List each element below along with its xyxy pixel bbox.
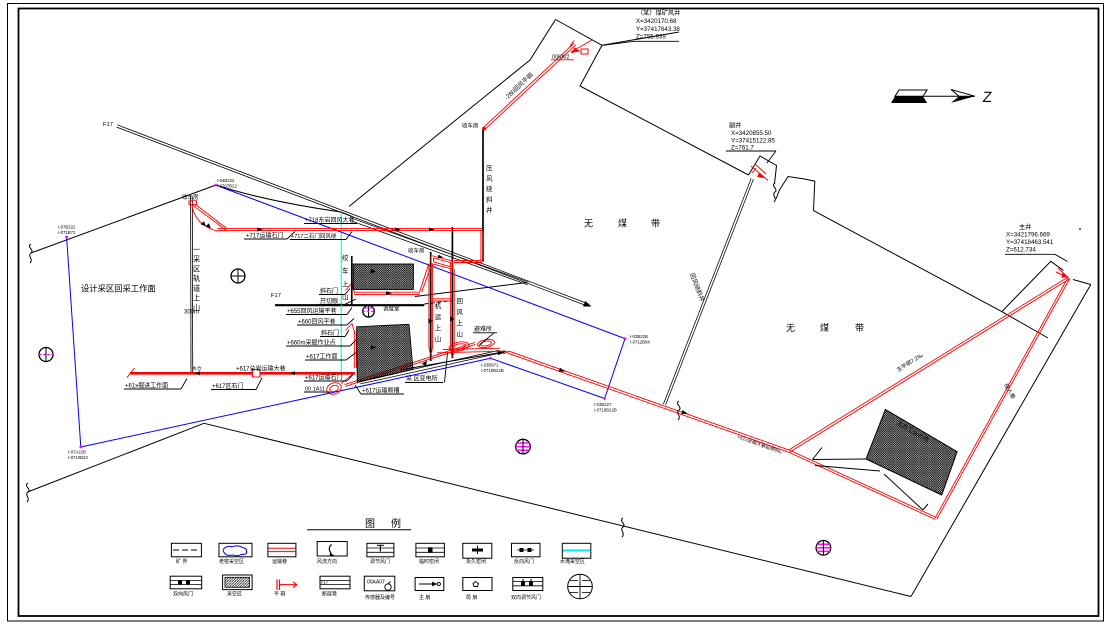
svg-text:无: 无	[786, 323, 795, 333]
svg-text:+655回风运输平巷: +655回风运输平巷	[287, 307, 337, 315]
svg-text:I-03B971: I-03B971	[481, 363, 499, 368]
svg-text:回风绕斜井: 回风绕斜井	[688, 272, 706, 303]
svg-text:主平硐7.2‰: 主平硐7.2‰	[895, 351, 925, 374]
svg-text:道: 道	[193, 284, 200, 293]
svg-text:双向调节风门: 双向调节风门	[511, 594, 541, 601]
svg-text:+718东岩回风大巷: +718东岩回风大巷	[305, 216, 355, 224]
svg-text:绕: 绕	[486, 184, 493, 193]
svg-text:采 区变电所: 采 区变电所	[406, 375, 438, 383]
svg-text:I-07B222: I-07B222	[58, 225, 76, 230]
svg-text:无: 无	[584, 219, 593, 229]
svg-text:回: 回	[457, 297, 464, 305]
svg-text:车: 车	[342, 266, 349, 275]
svg-text:压: 压	[486, 164, 493, 172]
svg-text:（某）煤矿风井: （某）煤矿风井	[637, 9, 680, 17]
svg-text:+660m采掘作业点: +660m采掘作业点	[287, 339, 336, 347]
svg-text:平 硐: 平 硐	[274, 592, 285, 598]
svg-text:临时密闭: 临时密闭	[419, 558, 439, 565]
svg-text:主 扇: 主 扇	[419, 594, 430, 601]
svg-text:斜: 斜	[486, 195, 493, 204]
svg-text:I-0716B22B: I-0716B22B	[594, 408, 617, 413]
svg-text:I-03B227: I-03B227	[594, 402, 612, 407]
svg-text:山: 山	[342, 292, 349, 301]
svg-text:Z=612.734: Z=612.734	[1006, 247, 1036, 254]
svg-text:收车房: 收车房	[462, 122, 479, 130]
svg-text:I-0707B22: I-0707B22	[217, 184, 237, 189]
svg-text:山: 山	[457, 329, 464, 338]
svg-text:上: 上	[193, 294, 200, 303]
svg-text:运: 运	[435, 313, 442, 321]
svg-text:I-0710B22: I-0710B22	[68, 455, 88, 460]
svg-text:煤: 煤	[618, 218, 627, 229]
svg-text:运输巷: 运输巷	[272, 558, 287, 565]
svg-text:老窑采空区: 老窑采空区	[219, 558, 244, 565]
svg-text:井: 井	[486, 205, 493, 214]
svg-text:Y=37415122.85: Y=37415122.85	[731, 138, 775, 145]
svg-text:轨: 轨	[193, 274, 200, 283]
svg-text:避难所: 避难所	[474, 325, 492, 333]
svg-text:机: 机	[435, 301, 442, 310]
svg-text:调度室: 调度室	[383, 305, 400, 313]
svg-text:风流方向: 风流方向	[317, 558, 337, 565]
svg-text:采: 采	[193, 255, 200, 264]
svg-text:风: 风	[486, 175, 493, 183]
svg-text:风: 风	[457, 308, 464, 316]
svg-text:I-03B22B: I-03B22B	[630, 334, 648, 339]
svg-text:传感器及编号: 传感器及编号	[365, 594, 395, 601]
svg-text:例: 例	[391, 517, 401, 530]
svg-text:300m: 300m	[184, 310, 199, 316]
svg-text:+617总岩运输大巷: +617总岩运输大巷	[236, 365, 286, 373]
svg-text:矿 界: 矿 界	[176, 558, 187, 565]
svg-text:水淹采空区: 水淹采空区	[560, 558, 585, 565]
svg-text:+617运输石门: +617运输石门	[305, 374, 343, 382]
svg-text:采空区: 采空区	[227, 591, 242, 598]
svg-text:上: 上	[457, 318, 464, 327]
svg-text:图: 图	[365, 518, 375, 530]
svg-text:带: 带	[855, 323, 864, 333]
svg-text:F17: F17	[321, 580, 329, 585]
svg-text:+61x掘进工作面: +61x掘进工作面	[125, 382, 168, 390]
svg-text:Y=37418463.541: Y=37418463.541	[1006, 239, 1054, 246]
svg-text:Y=37417643.38: Y=37417643.38	[636, 26, 680, 33]
svg-text:F17: F17	[271, 293, 281, 299]
svg-text:区: 区	[193, 264, 200, 273]
svg-text:+617区石门: +617区石门	[212, 382, 244, 390]
svg-text:上: 上	[435, 323, 442, 332]
svg-text:X=3420855.50: X=3420855.50	[731, 130, 772, 137]
svg-text:收车房: 收车房	[408, 247, 425, 255]
svg-text:副井: 副井	[729, 122, 741, 130]
svg-text:+660回风平巷: +660回风平巷	[298, 318, 336, 326]
svg-text:+61x运输大巷延伸8‰: +61x运输大巷延伸8‰	[736, 433, 783, 455]
svg-text:永久密闭: 永久密闭	[466, 558, 486, 565]
svg-text:开切眼: 开切眼	[320, 298, 338, 305]
svg-text:斜石门: 斜石门	[320, 287, 338, 295]
svg-text:主井: 主井	[1019, 223, 1031, 231]
svg-text:Z=755.939: Z=755.939	[636, 34, 666, 41]
svg-text:Z: Z	[982, 89, 993, 106]
svg-text:绞: 绞	[342, 253, 349, 262]
svg-text:+617运输顺槽: +617运输顺槽	[362, 387, 400, 395]
svg-text:局 扇: 局 扇	[466, 594, 477, 601]
svg-text:收车房: 收车房	[182, 193, 199, 201]
svg-text:+717二石门回风绕: +717二石门回风绕	[291, 232, 337, 240]
svg-text:一: 一	[193, 245, 200, 254]
svg-text:Z=761.7: Z=761.7	[731, 145, 754, 152]
svg-text:设计采区回采工作面: 设计采区回采工作面	[81, 284, 156, 294]
svg-text:I-07A22B: I-07A22B	[68, 450, 86, 455]
svg-text:+617工作面: +617工作面	[306, 353, 338, 361]
svg-text:水仓: 水仓	[192, 365, 202, 372]
svg-text:双向风门: 双向风门	[173, 591, 193, 598]
svg-text:断层巷: 断层巷	[322, 591, 337, 598]
svg-text:斜石门: 斜石门	[321, 329, 339, 337]
svg-text:山: 山	[435, 334, 442, 343]
svg-text:I-071B72: I-071B72	[58, 230, 76, 235]
svg-text:调节风门: 调节风门	[370, 558, 390, 565]
svg-text:I-0712B9K: I-0712B9K	[630, 340, 650, 345]
svg-text:F17: F17	[103, 122, 113, 128]
svg-text:反向风门: 反向风门	[514, 558, 534, 565]
svg-text:I-04B222: I-04B222	[217, 178, 235, 183]
svg-text:00AA07: 00AA07	[367, 580, 385, 586]
svg-text:煤: 煤	[820, 322, 829, 333]
svg-text:+717运输石门: +717运输石门	[246, 232, 284, 240]
svg-text:X=3421796.669: X=3421796.669	[1006, 232, 1050, 239]
svg-text:I-0710B22B: I-0710B22B	[481, 368, 504, 373]
svg-text:上: 上	[342, 279, 349, 288]
svg-text:X=3420170.68: X=3420170.68	[636, 18, 677, 25]
svg-text:带: 带	[651, 219, 660, 229]
